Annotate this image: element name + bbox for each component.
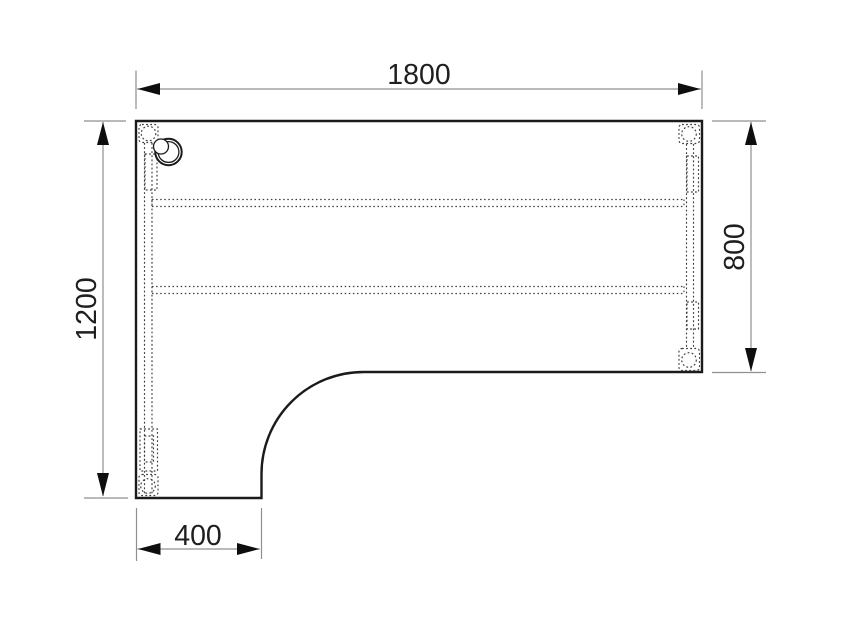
technical-drawing-page: 1800 1200 800 400	[0, 0, 859, 634]
dimension-value-bottom: 400	[174, 520, 222, 552]
dimension-value-left: 1200	[71, 277, 103, 340]
grommet-cap	[154, 139, 169, 154]
dimension-value-top: 1800	[387, 59, 450, 91]
drawing-canvas: 1800 1200 800 400	[0, 0, 859, 634]
cable-grommet-icon	[154, 139, 182, 165]
dimension-value-right: 800	[719, 223, 751, 271]
